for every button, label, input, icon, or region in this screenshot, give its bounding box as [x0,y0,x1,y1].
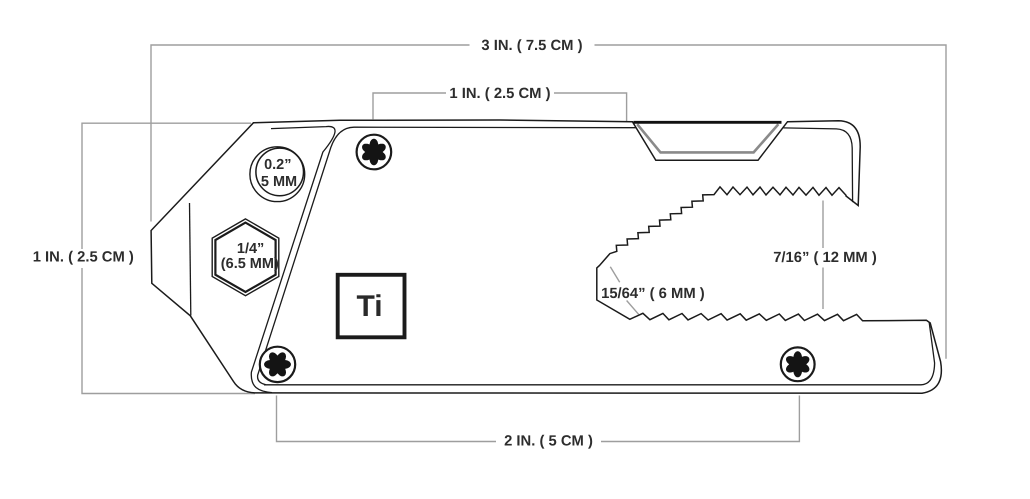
svg-text:1/4”: 1/4” [237,241,264,257]
svg-text:7/16” ( 12 MM ): 7/16” ( 12 MM ) [773,250,877,266]
svg-text:1 IN. ( 2.5 CM ): 1 IN. ( 2.5 CM ) [33,250,134,266]
svg-text:3 IN. ( 7.5 CM ): 3 IN. ( 7.5 CM ) [481,38,582,54]
svg-text:(6.5 MM): (6.5 MM) [221,256,279,272]
svg-text:1 IN. ( 2.5 CM ): 1 IN. ( 2.5 CM ) [449,86,550,102]
svg-text:2 IN. ( 5 CM ): 2 IN. ( 5 CM ) [504,433,593,449]
svg-text:15/64” ( 6 MM ): 15/64” ( 6 MM ) [601,286,705,302]
svg-text:5 MM: 5 MM [261,174,297,190]
svg-text:0.2”: 0.2” [264,157,291,173]
svg-text:Ti: Ti [356,290,382,323]
